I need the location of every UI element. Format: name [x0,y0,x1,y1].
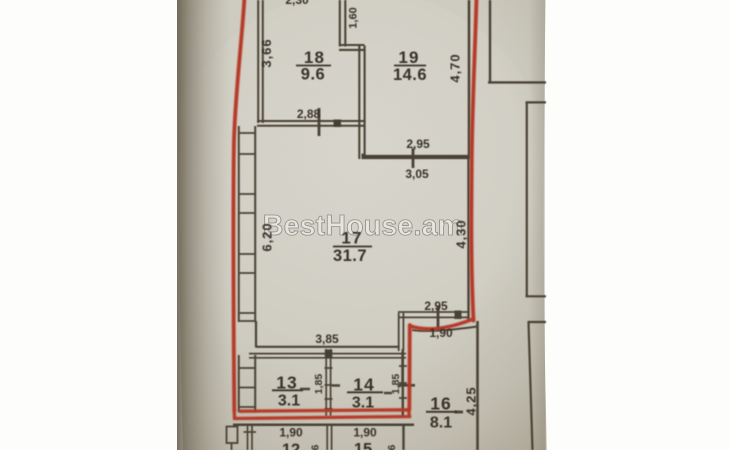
svg-text:1,6: 1,6 [310,445,322,450]
svg-text:14.6: 14.6 [393,66,427,84]
svg-text:3.1: 3.1 [278,393,300,410]
svg-text:3,66: 3,66 [259,38,274,67]
svg-text:2,95: 2,95 [406,137,430,151]
svg-text:12: 12 [282,441,300,450]
svg-text:1,90: 1,90 [279,426,303,440]
svg-text:3,05: 3,05 [405,167,429,181]
svg-text:16: 16 [430,394,451,414]
svg-text:1,85: 1,85 [313,374,325,395]
svg-text:8.1: 8.1 [430,415,452,432]
svg-text:9.6: 9.6 [301,66,325,84]
svg-text:18: 18 [304,48,325,67]
svg-text:3.1: 3.1 [352,395,374,412]
svg-text:1,60: 1,60 [348,7,360,28]
svg-text:6,20: 6,20 [260,222,275,251]
svg-text:2,30: 2,30 [285,0,309,7]
svg-text:1,6: 1,6 [386,445,398,450]
svg-text:4,70: 4,70 [448,53,463,82]
svg-text:3,85: 3,85 [315,332,339,346]
svg-text:19: 19 [398,48,419,67]
svg-text:15: 15 [354,441,372,450]
svg-text:BestHouse.am: BestHouse.am [263,210,463,242]
svg-text:1,85: 1,85 [390,374,402,395]
svg-text:2,95: 2,95 [424,299,448,313]
svg-text:1,90: 1,90 [353,426,377,440]
svg-text:1,90: 1,90 [429,326,453,340]
svg-text:2,88: 2,88 [297,107,321,121]
svg-text:31.7: 31.7 [333,247,367,265]
svg-text:17: 17 [341,229,362,248]
svg-text:4,25: 4,25 [464,386,479,415]
svg-text:4,30: 4,30 [454,219,469,248]
